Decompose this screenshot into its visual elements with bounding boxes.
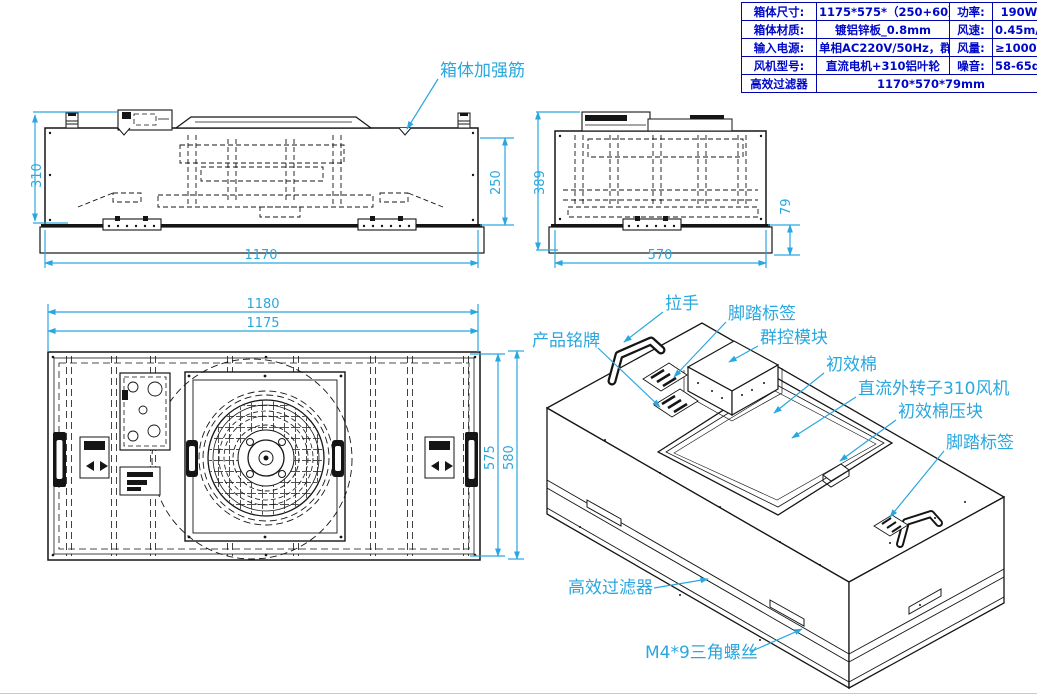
side-body bbox=[555, 131, 766, 225]
dim-top-inner-height: 575 bbox=[483, 445, 498, 470]
spec-key: 风量: bbox=[950, 39, 993, 57]
spec-row: 输入电源: 单相AC220V/50Hz，群控 风量: ≥1000 m3/h bbox=[742, 39, 1037, 57]
front-bolt-left bbox=[66, 113, 78, 128]
dim-top-inner-width: 1175 bbox=[246, 316, 279, 331]
spec-value: 单相AC220V/50Hz，群控 bbox=[817, 39, 950, 57]
spec-value: 0.45m/s±20% bbox=[993, 21, 1037, 39]
spec-key: 功率: bbox=[950, 3, 993, 21]
spec-key: 高效过滤器 bbox=[742, 75, 817, 93]
top-foot-plate-left bbox=[80, 437, 109, 478]
spec-row: 箱体材质: 镀铝锌板_0.8mm 风速: 0.45m/s±20% bbox=[742, 21, 1037, 39]
front-body bbox=[45, 128, 478, 225]
top-label-block bbox=[120, 467, 160, 495]
drawing-canvas: 310 250 1170 箱体加强筋 bbox=[0, 0, 1037, 694]
front-bolt-right bbox=[458, 113, 470, 128]
spec-value: 190W bbox=[993, 3, 1037, 21]
spec-value: ≥1000 m3/h bbox=[993, 39, 1037, 57]
callout-dc-fan: 直流外转子310风机 bbox=[858, 379, 1009, 399]
spec-key: 噪音: bbox=[950, 57, 993, 75]
dim-front-width: 1170 bbox=[244, 248, 277, 263]
spec-table: 箱体尺寸: 1175*575*（250+60）mm 功率: 190W 箱体材质:… bbox=[741, 2, 1037, 93]
spec-value: 直流电机+310铝叶轮 bbox=[817, 57, 950, 75]
callout-hepa: 高效过滤器 bbox=[568, 578, 653, 598]
dim-side-filter: 79 bbox=[779, 198, 794, 215]
front-junction-box bbox=[118, 110, 172, 130]
top-view: 1180 1175 575 580 bbox=[15, 290, 530, 590]
spec-key: 箱体材质: bbox=[742, 21, 817, 39]
dim-top-outer-height: 580 bbox=[502, 445, 517, 470]
dim-side-height: 389 bbox=[533, 170, 548, 195]
dim-side-width: 570 bbox=[648, 248, 673, 263]
spec-key: 输入电源: bbox=[742, 39, 817, 57]
spec-row: 高效过滤器 1170*570*79mm bbox=[742, 75, 1037, 93]
callout-foot-label-1: 脚踏标签 bbox=[728, 304, 796, 324]
callout-foot-label-2: 脚踏标签 bbox=[946, 433, 1014, 453]
dim-front-height: 310 bbox=[30, 163, 45, 188]
spec-row: 箱体尺寸: 1175*575*（250+60）mm 功率: 190W bbox=[742, 3, 1037, 21]
callout-prefilter: 初效棉 bbox=[826, 355, 877, 375]
dim-front-inner: 250 bbox=[489, 170, 504, 195]
spec-row: 风机型号: 直流电机+310铝叶轮 噪音: 58-65dB bbox=[742, 57, 1037, 75]
top-control-box bbox=[120, 373, 170, 450]
spec-value: 1170*570*79mm bbox=[817, 75, 1037, 93]
dim-top-outer-width: 1180 bbox=[246, 297, 279, 312]
callout-nameplate: 产品铭牌 bbox=[532, 331, 600, 351]
spec-key: 风速: bbox=[950, 21, 993, 39]
callout-screw: M4*9三角螺丝 bbox=[645, 643, 758, 663]
callout-reinforce: 箱体加强筋 bbox=[440, 61, 525, 81]
callout-handle: 拉手 bbox=[665, 294, 699, 314]
front-view: 310 250 1170 箱体加强筋 bbox=[28, 55, 548, 290]
spec-key: 箱体尺寸: bbox=[742, 3, 817, 21]
spec-value: 1175*575*（250+60）mm bbox=[817, 3, 950, 21]
spec-value: 58-65dB bbox=[993, 57, 1037, 75]
callout-prefilter-clamp: 初效棉压块 bbox=[898, 402, 983, 422]
side-junction-box bbox=[582, 112, 650, 131]
front-fan-housing bbox=[176, 117, 371, 128]
top-foot-plate-right bbox=[425, 437, 454, 478]
spec-key: 风机型号: bbox=[742, 57, 817, 75]
spec-value: 镀铝锌板_0.8mm bbox=[817, 21, 950, 39]
side-top-plate bbox=[648, 115, 732, 131]
callout-control-module: 群控模块 bbox=[760, 328, 828, 348]
isometric-view: 拉手 脚踏标签 产品铭牌 群控模块 初效棉 直流外转子310风机 初效棉压块 脚… bbox=[520, 295, 1037, 693]
